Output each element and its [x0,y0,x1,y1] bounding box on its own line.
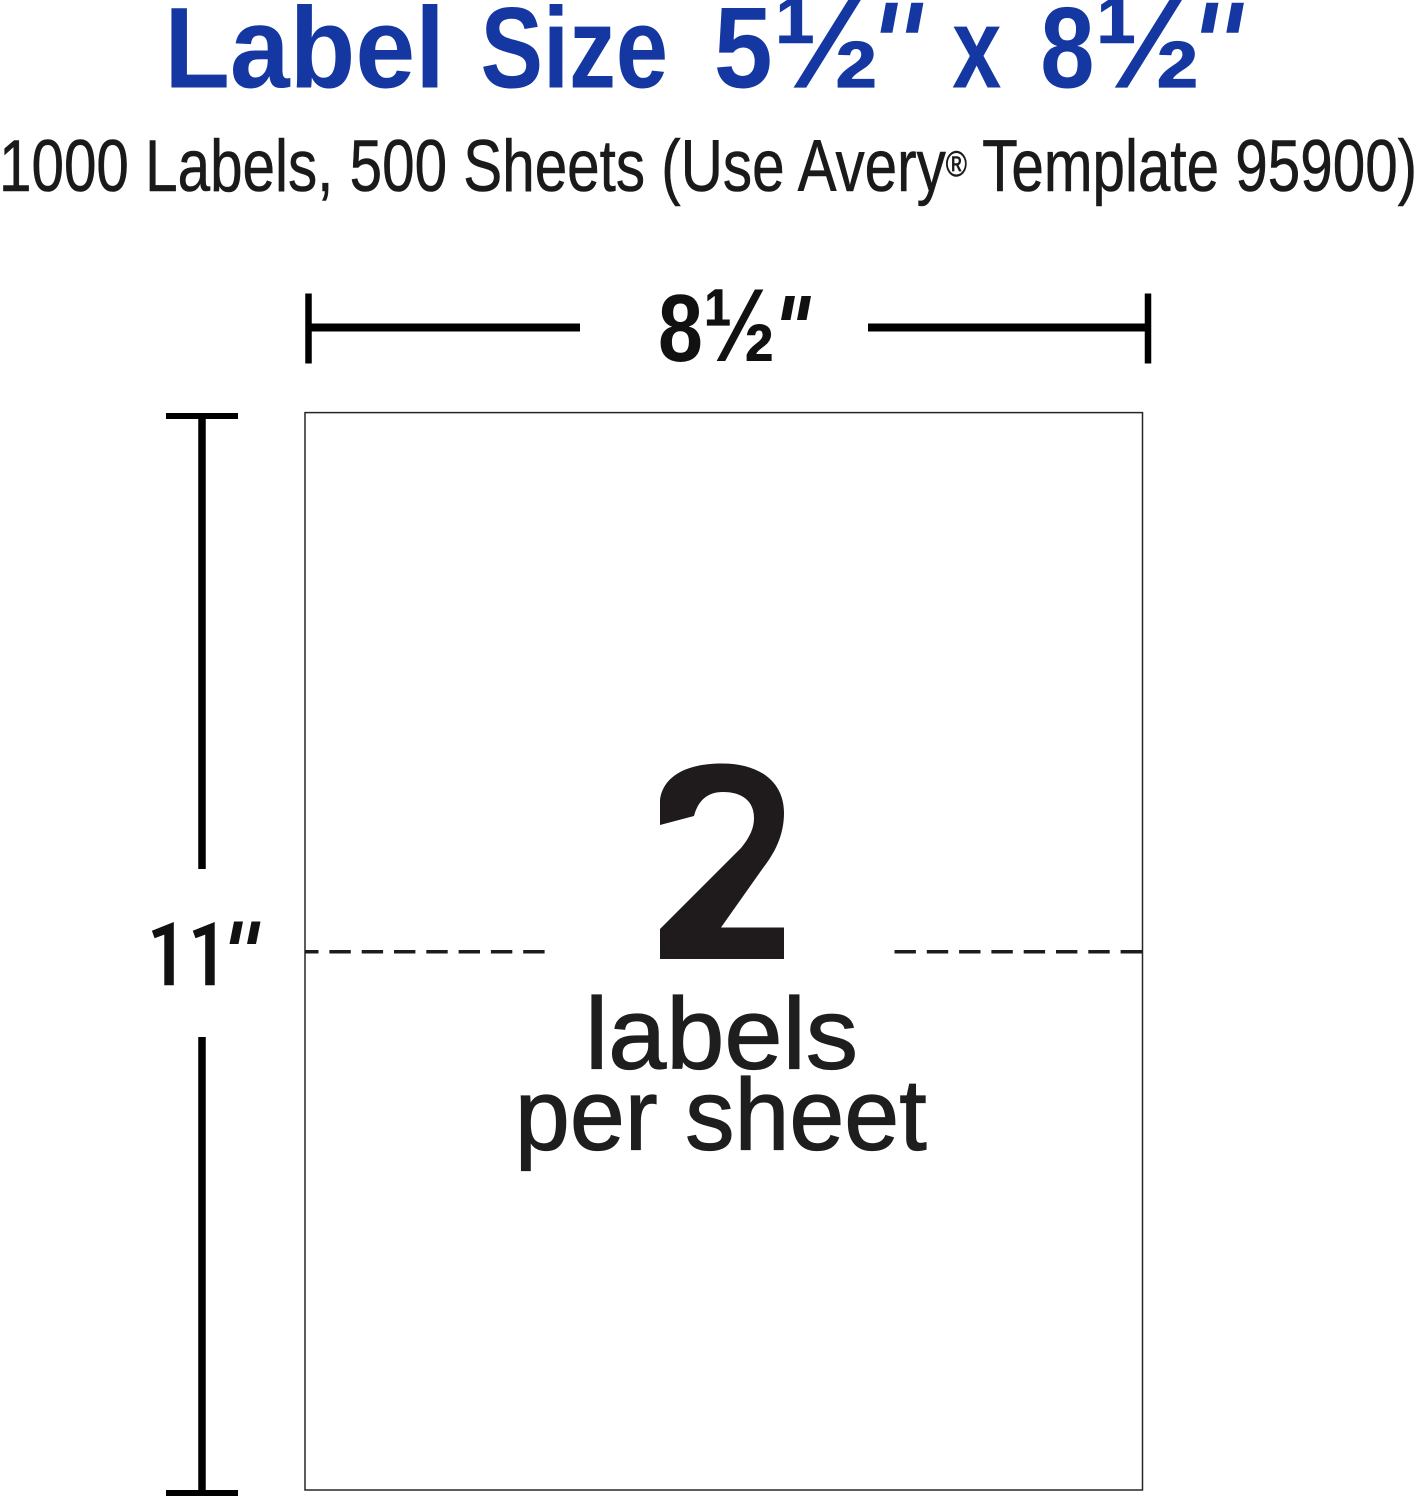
svg-text:Label: Label [164,0,445,112]
svg-text:8: 8 [1040,0,1094,112]
svg-text:8½: 8½ [658,268,776,384]
svg-text:per sheet: per sheet [515,1059,927,1171]
svg-text:1000 Labels, 500 Sheets (Use A: 1000 Labels, 500 Sheets (Use Avery® Temp… [0,126,1417,208]
svg-text:5: 5 [714,0,773,113]
svg-text:½: ½ [1095,0,1202,116]
svg-text:x: x [952,0,1001,112]
svg-text:½: ½ [773,0,880,116]
svg-text:Size: Size [481,0,669,113]
